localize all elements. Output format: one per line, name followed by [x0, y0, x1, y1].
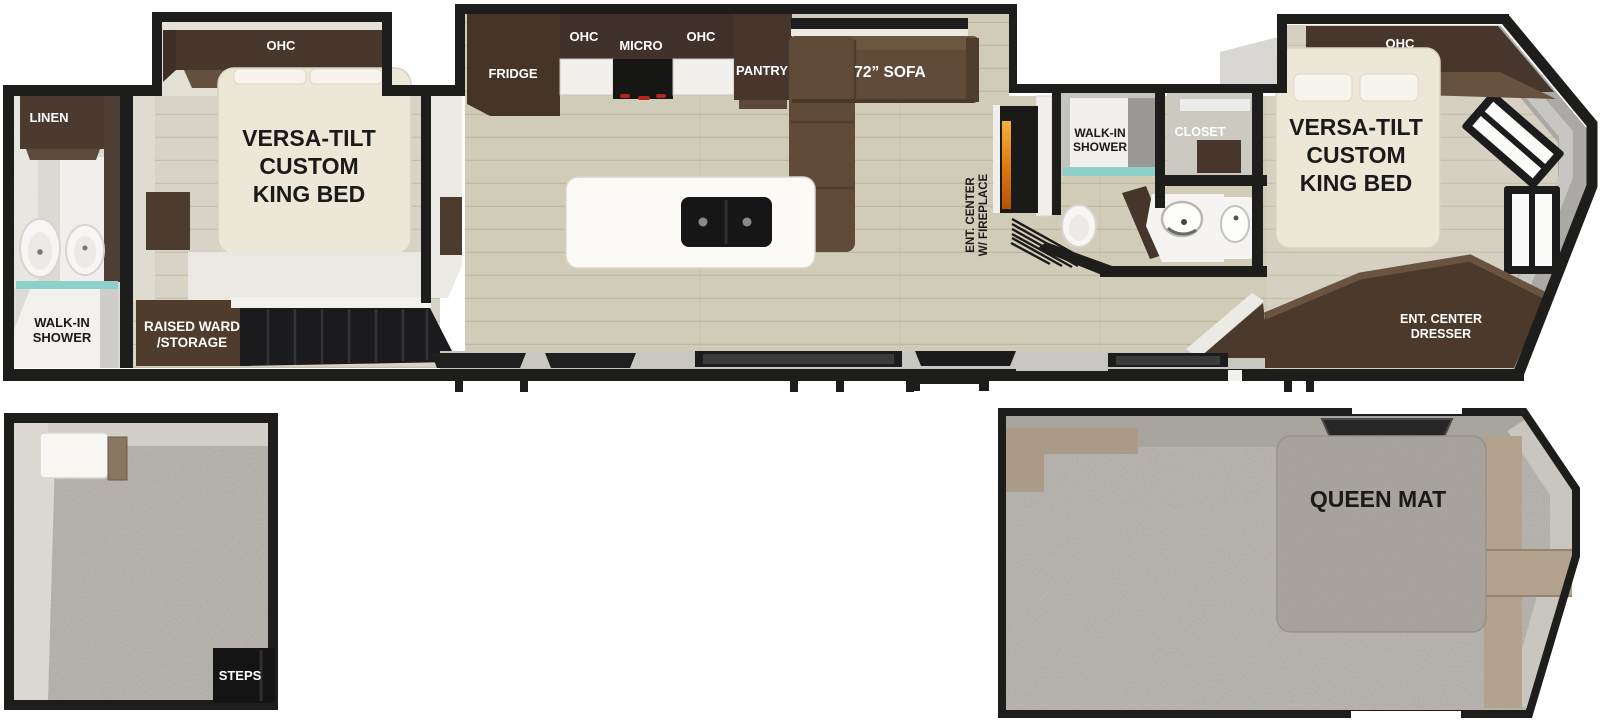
svg-text:KING BED: KING BED — [1300, 170, 1412, 196]
svg-text:72” SOFA: 72” SOFA — [854, 64, 926, 81]
svg-text:DRESSER: DRESSER — [1411, 327, 1471, 341]
svg-text:LINEN: LINEN — [30, 110, 69, 125]
svg-text:VERSA-TILT: VERSA-TILT — [1289, 114, 1423, 140]
svg-text:PANTRY: PANTRY — [736, 63, 788, 78]
svg-text:WALK-IN: WALK-IN — [34, 315, 90, 330]
svg-text:W/ FIREPLACE: W/ FIREPLACE — [978, 173, 990, 256]
svg-text:ENT. CENTER: ENT. CENTER — [1400, 312, 1482, 326]
svg-text:OHC: OHC — [267, 38, 297, 53]
svg-text:FRIDGE: FRIDGE — [488, 66, 537, 81]
svg-text:ENT. CENTER: ENT. CENTER — [965, 177, 977, 253]
svg-text:STEPS: STEPS — [219, 668, 262, 683]
svg-text:RAISED WARD: RAISED WARD — [144, 319, 240, 334]
svg-text:CUSTOM: CUSTOM — [1306, 142, 1405, 168]
svg-text:SHOWER: SHOWER — [33, 330, 92, 345]
svg-text:/STORAGE: /STORAGE — [157, 335, 227, 350]
svg-text:CLOSET: CLOSET — [1175, 125, 1226, 139]
svg-text:SHOWER: SHOWER — [1073, 140, 1127, 154]
svg-text:VERSA-TILT: VERSA-TILT — [242, 125, 376, 151]
svg-text:OHC: OHC — [687, 29, 717, 44]
svg-text:KING BED: KING BED — [253, 181, 365, 207]
svg-text:OHC: OHC — [570, 29, 600, 44]
svg-text:MICRO: MICRO — [619, 38, 662, 53]
svg-text:WALK-IN: WALK-IN — [1074, 126, 1125, 140]
svg-text:CUSTOM: CUSTOM — [259, 153, 358, 179]
svg-text:QUEEN MAT: QUEEN MAT — [1310, 486, 1446, 512]
